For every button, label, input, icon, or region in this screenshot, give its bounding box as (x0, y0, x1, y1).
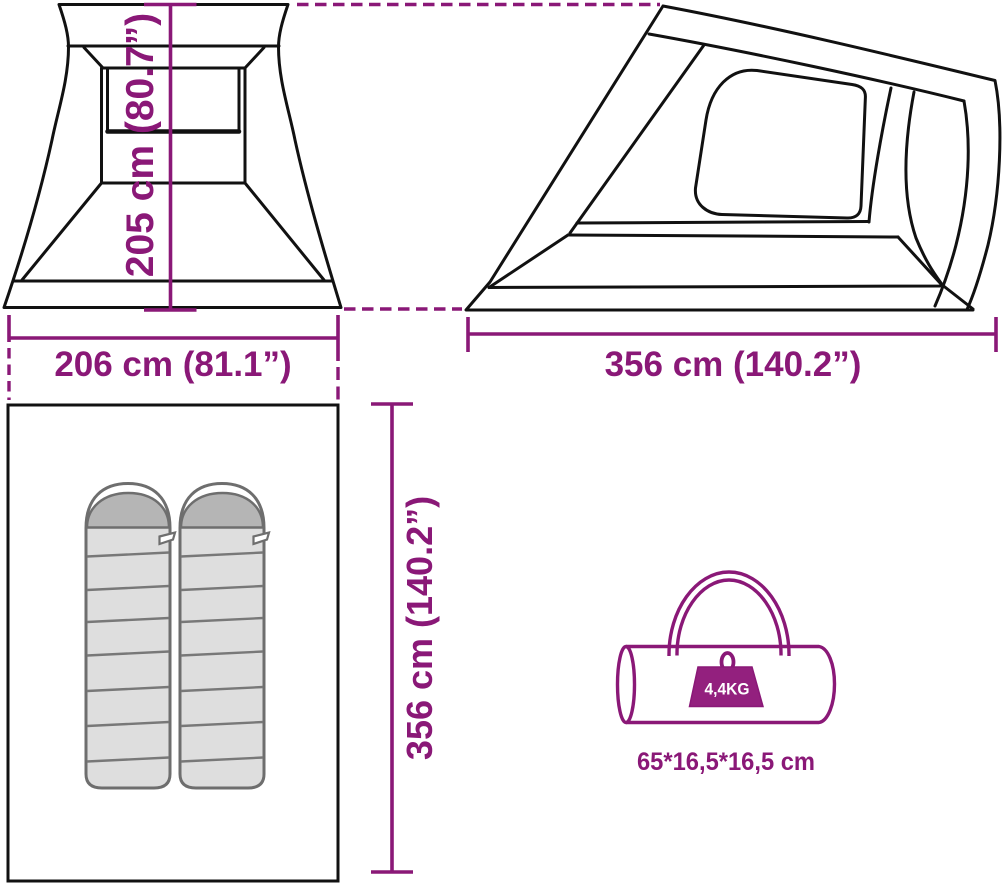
svg-text:206 cm (81.1”): 206 cm (81.1”) (54, 345, 291, 384)
svg-text:205 cm (80.7”): 205 cm (80.7”) (119, 13, 162, 278)
svg-text:65*16,5*16,5 cm: 65*16,5*16,5 cm (637, 748, 815, 776)
svg-text:356 cm (140.2”): 356 cm (140.2”) (605, 345, 862, 384)
svg-text:4,4KG: 4,4KG (705, 681, 750, 699)
svg-text:356 cm (140.2”): 356 cm (140.2”) (399, 496, 440, 760)
